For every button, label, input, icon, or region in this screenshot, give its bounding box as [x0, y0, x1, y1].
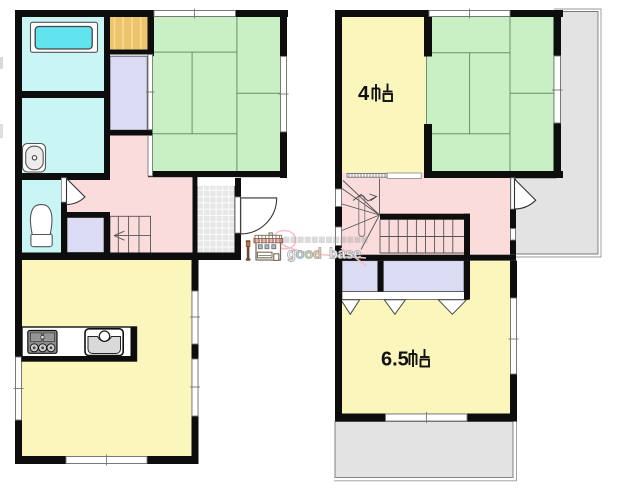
svg-text:6.5: 6.5 — [381, 349, 409, 371]
svg-text:4: 4 — [358, 83, 370, 105]
svg-text:good base: good base — [287, 247, 361, 263]
